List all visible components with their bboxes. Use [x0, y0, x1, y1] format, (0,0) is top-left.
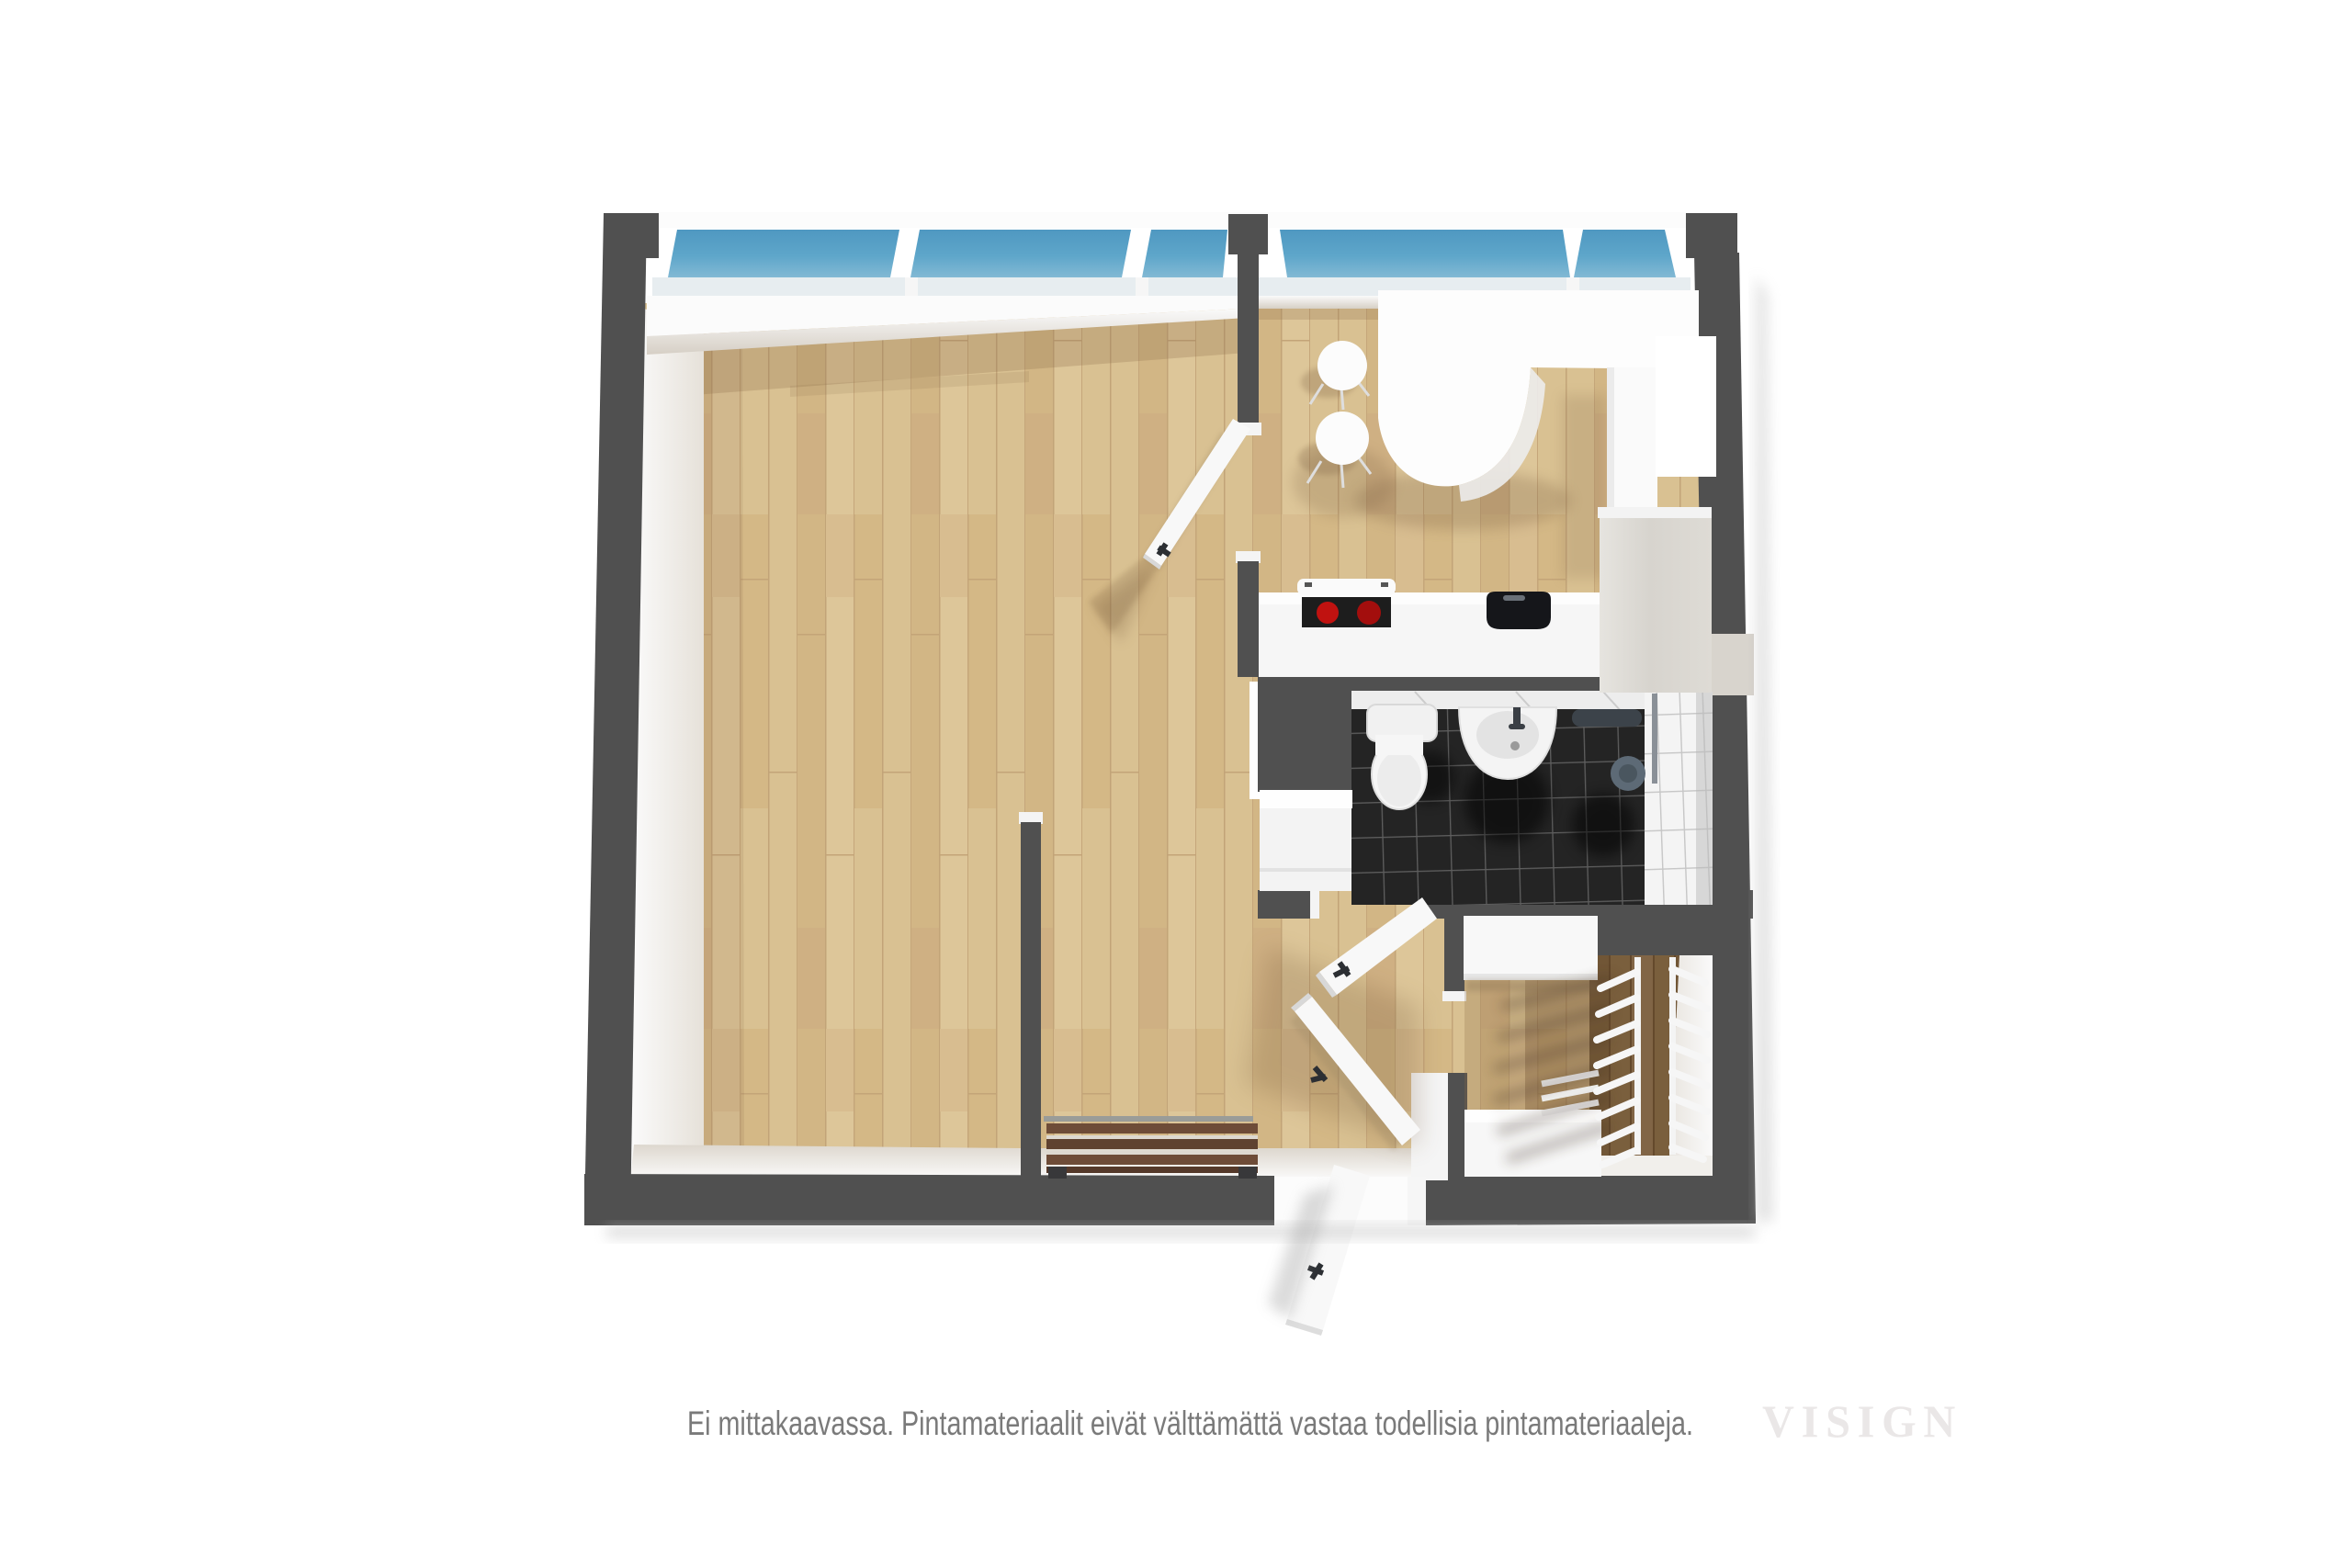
svg-text:VISIGN: VISIGN — [1762, 1395, 1962, 1447]
svg-text:Ei mittakaavassa. Pintamateria: Ei mittakaavassa. Pintamateriaalit eivät… — [687, 1404, 1693, 1442]
